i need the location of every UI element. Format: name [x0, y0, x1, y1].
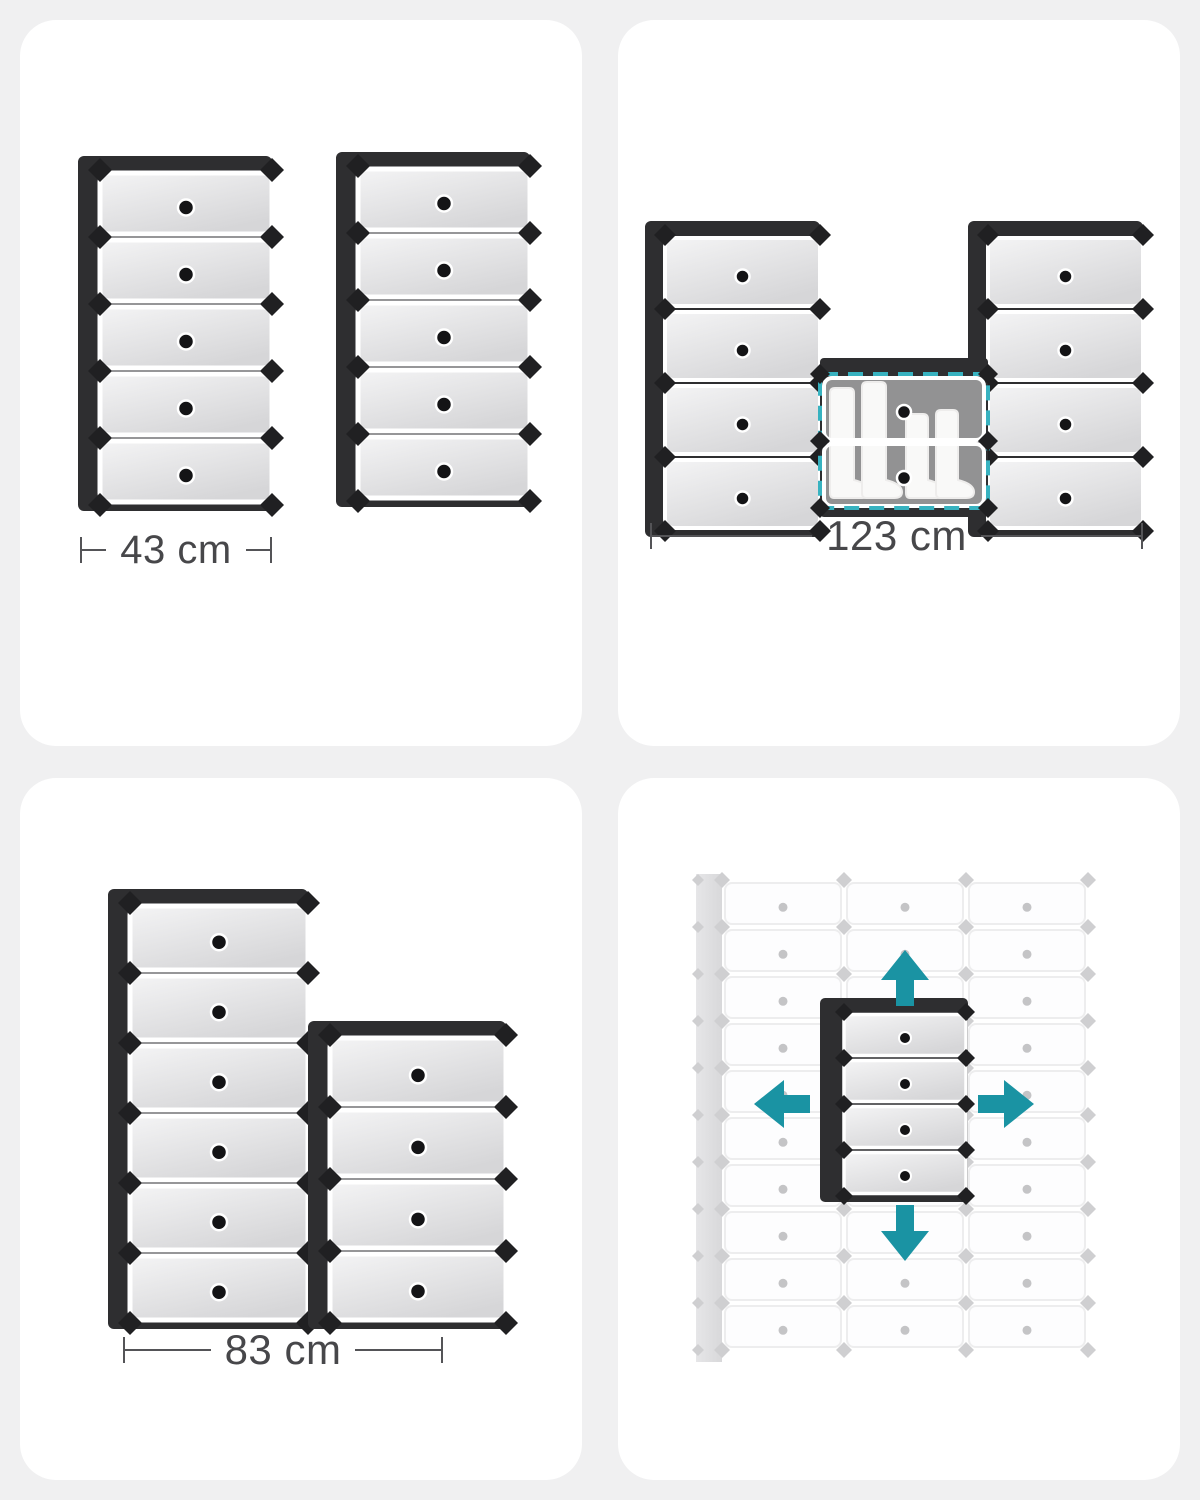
- door-knob: [211, 1074, 227, 1090]
- dimension-label: 123 cm: [826, 515, 967, 557]
- door-knob: [178, 267, 194, 283]
- panel-dual-towers: 43 cm: [20, 20, 582, 746]
- expandable-grid-illustration: [618, 778, 1180, 1480]
- door-knob: [436, 330, 452, 346]
- door-knob: [410, 1211, 426, 1227]
- door-knob: [897, 471, 911, 485]
- door-knob: [178, 401, 194, 417]
- door-knob: [211, 1284, 227, 1300]
- door-knob: [1059, 417, 1073, 431]
- door-knob: [899, 1170, 911, 1182]
- dimension-tick-right: [1141, 523, 1143, 549]
- shoe-tower-left: [78, 156, 284, 517]
- door-knob: [1059, 269, 1073, 283]
- door-knob: [736, 343, 750, 357]
- highlighted-boot-compartment: [810, 358, 998, 518]
- dimension-line: [82, 549, 106, 551]
- door-knob: [211, 1144, 227, 1160]
- dimension-tick-right: [270, 537, 272, 563]
- shoe-tower-right: [968, 221, 1154, 542]
- dimension-123cm: 123 cm: [650, 512, 1143, 560]
- dimension-83cm: 83 cm: [123, 1326, 443, 1374]
- u-configuration-illustration: [618, 20, 1180, 746]
- door-knob: [436, 464, 452, 480]
- product-image: 43 cm 123 cm 83 cm: [0, 0, 1200, 1500]
- panel-step-configuration: 83 cm: [20, 778, 582, 1480]
- dimension-tick-right: [441, 1337, 443, 1363]
- panel-u-configuration: 123 cm: [618, 20, 1180, 746]
- door-knob: [1059, 343, 1073, 357]
- door-knob: [736, 417, 750, 431]
- door-knob: [178, 334, 194, 350]
- door-knob: [436, 397, 452, 413]
- door-knob: [410, 1067, 426, 1083]
- shoe-tower-left: [645, 221, 831, 542]
- dimension-line: [125, 1349, 211, 1351]
- movable-unit: [820, 998, 975, 1205]
- door-knob: [899, 1124, 911, 1136]
- dimension-label: 83 cm: [225, 1329, 342, 1371]
- door-knob: [736, 491, 750, 505]
- shoe-tower-right: [336, 152, 542, 513]
- door-knob: [211, 1004, 227, 1020]
- door-knob: [736, 269, 750, 283]
- dual-towers-illustration: [20, 20, 582, 746]
- dimension-label: 43 cm: [120, 530, 231, 570]
- dimension-line: [246, 549, 270, 551]
- door-knob: [897, 405, 911, 419]
- door-knob: [211, 934, 227, 950]
- door-knob: [178, 200, 194, 216]
- door-knob: [211, 1214, 227, 1230]
- shoe-tower-tall: [108, 889, 320, 1335]
- door-knob: [1059, 491, 1073, 505]
- dimension-line: [981, 535, 1141, 537]
- door-knob: [899, 1032, 911, 1044]
- step-configuration-illustration: [20, 778, 582, 1480]
- door-knob: [410, 1283, 426, 1299]
- shoe-tower-short: [308, 1021, 518, 1335]
- door-knob: [410, 1139, 426, 1155]
- dimension-line: [652, 535, 812, 537]
- dimension-line: [355, 1349, 441, 1351]
- panel-expandable-grid: [618, 778, 1180, 1480]
- door-knob: [178, 468, 194, 484]
- dimension-43cm: 43 cm: [80, 526, 272, 574]
- door-knob: [436, 196, 452, 212]
- door-knob: [899, 1078, 911, 1090]
- door-knob: [436, 263, 452, 279]
